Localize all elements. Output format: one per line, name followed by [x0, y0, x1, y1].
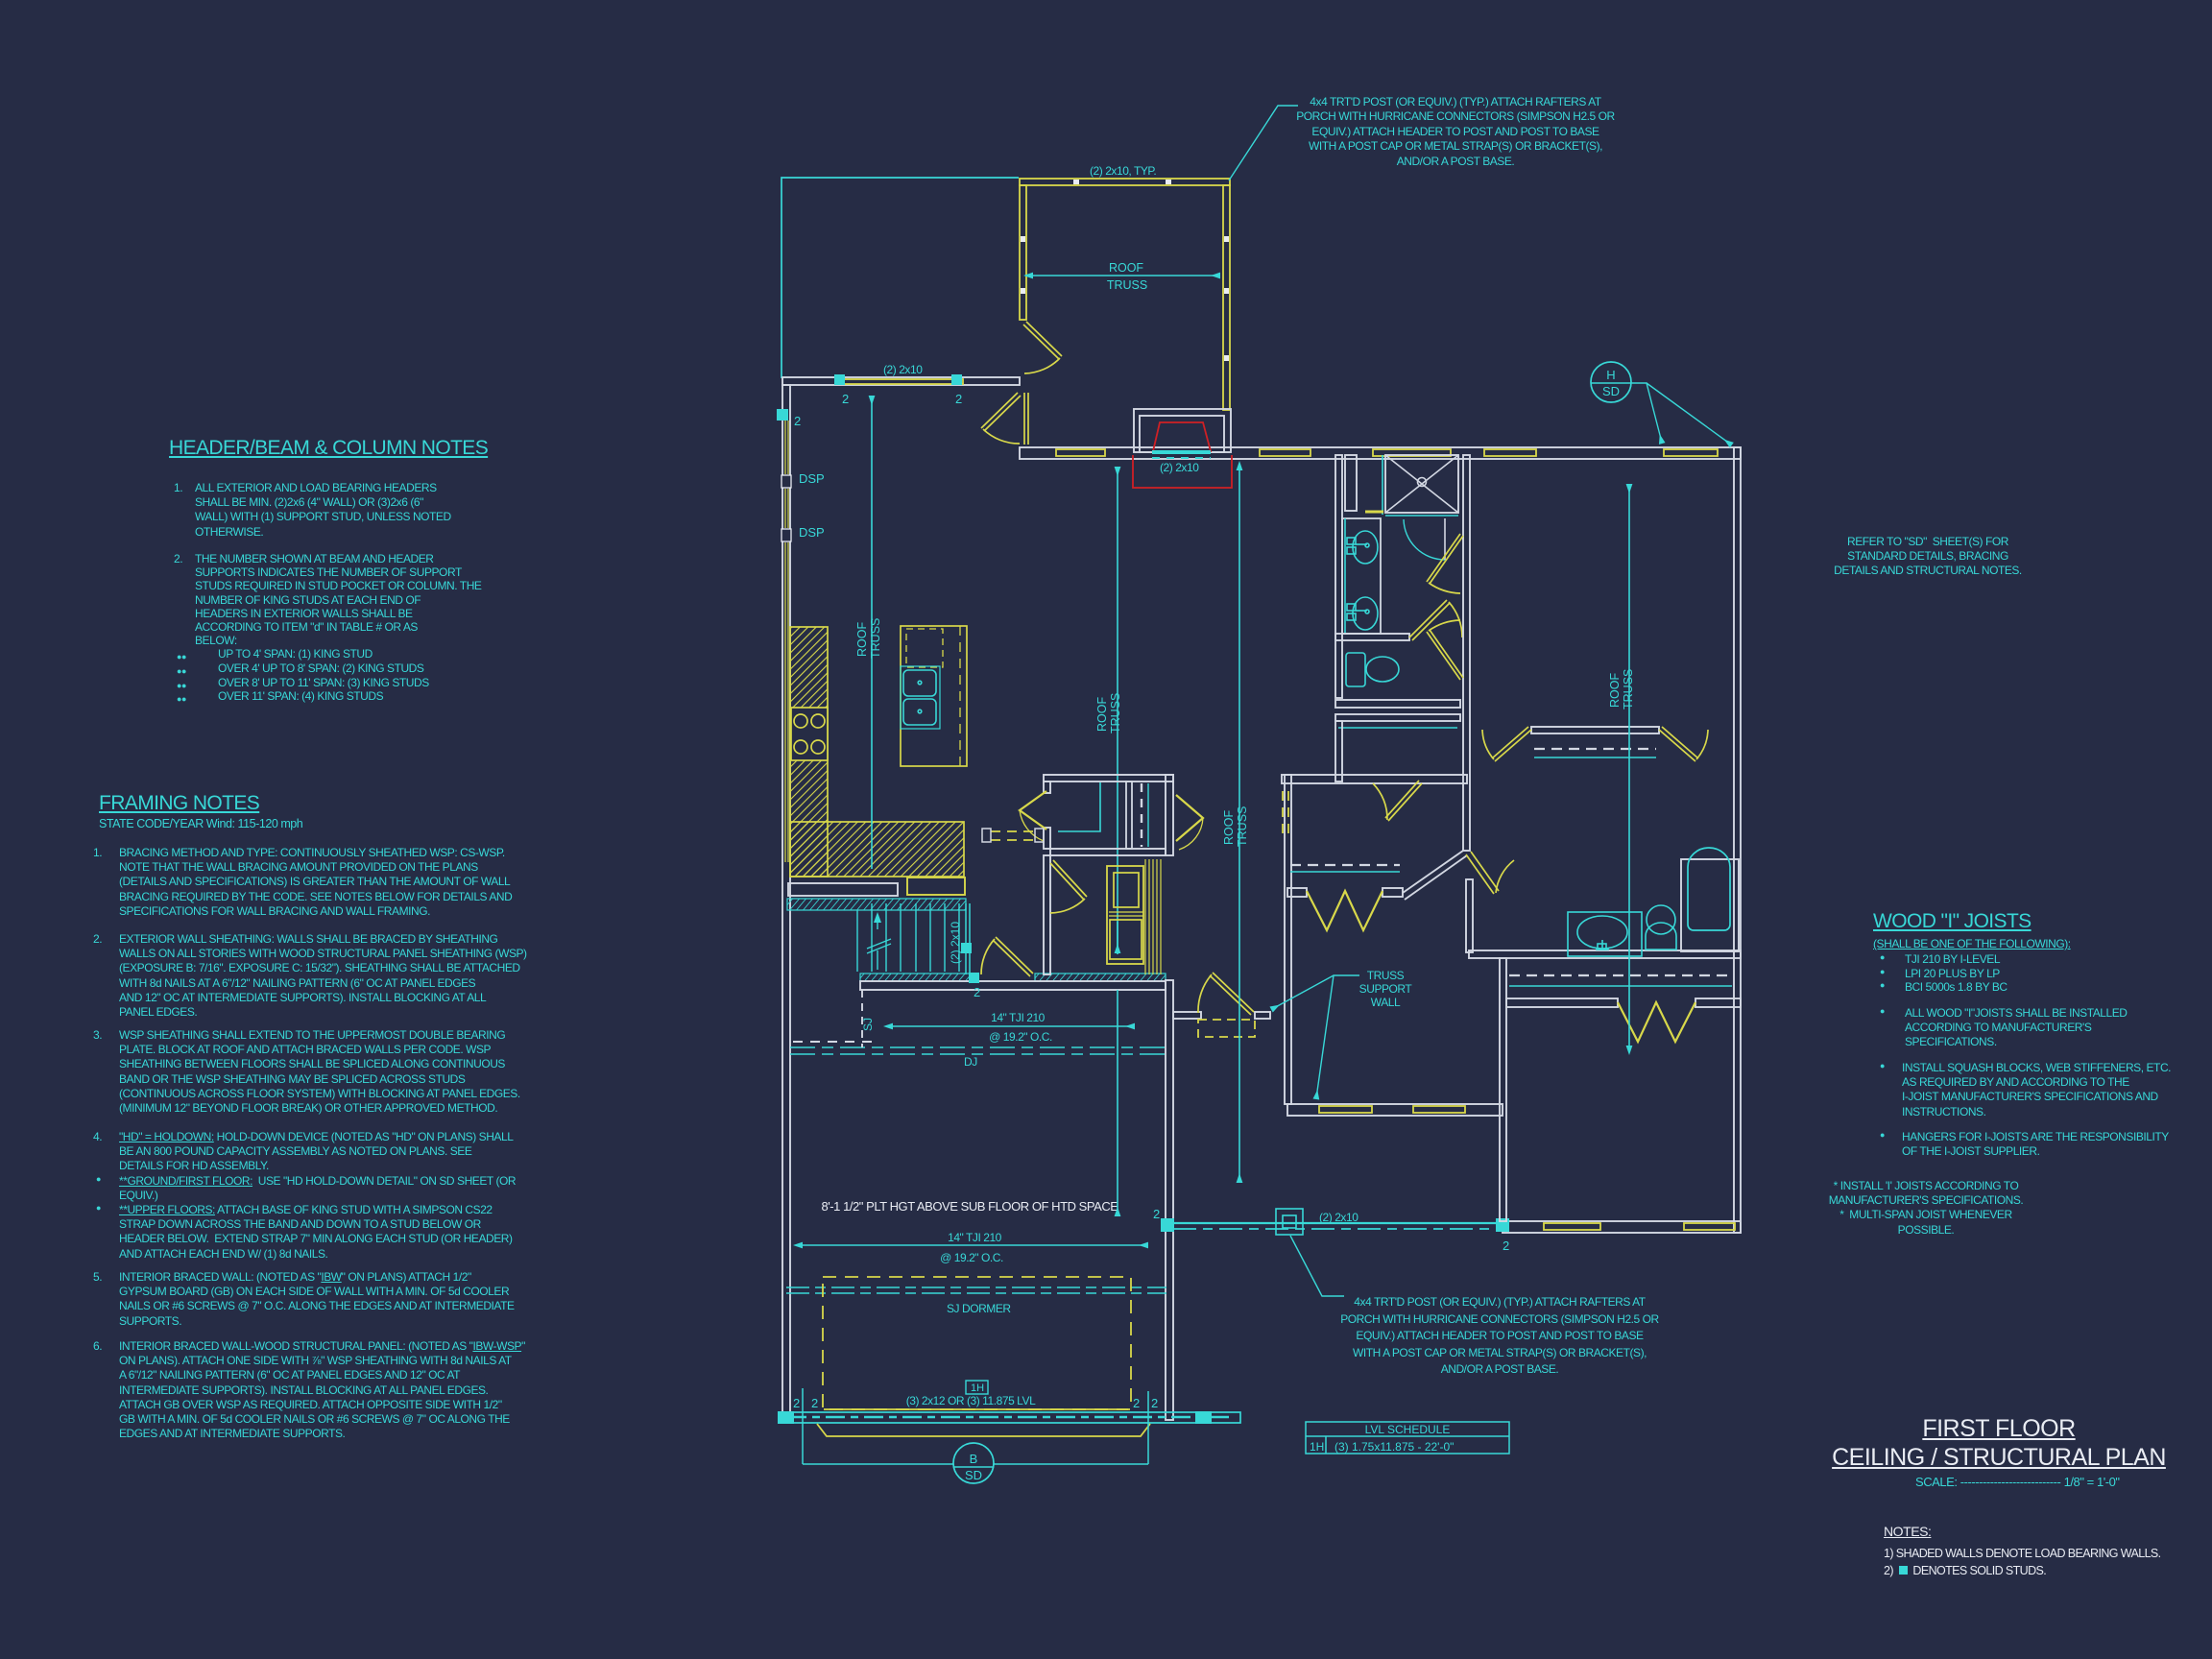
svg-text:1H: 1H — [1310, 1440, 1324, 1454]
svg-text:2: 2 — [793, 1396, 800, 1410]
svg-text:2: 2 — [974, 985, 980, 999]
svg-text:2: 2 — [842, 392, 849, 406]
svg-text:ROOF: ROOF — [855, 622, 869, 657]
svg-text:(3) 1.75x11.875 - 22'-0": (3) 1.75x11.875 - 22'-0" — [1334, 1440, 1454, 1454]
svg-text:(2) 2x10: (2) 2x10 — [949, 922, 962, 964]
svg-text:TRUSS: TRUSS — [1622, 669, 1635, 709]
svg-text:ROOF: ROOF — [1109, 261, 1143, 275]
svg-text:SD: SD — [1602, 384, 1620, 398]
svg-text:2: 2 — [794, 414, 801, 428]
svg-text:B: B — [970, 1452, 978, 1466]
svg-text:DSP: DSP — [799, 525, 825, 540]
svg-text:SD: SD — [965, 1468, 982, 1482]
svg-text:SJ: SJ — [861, 1018, 875, 1031]
svg-text:LVL SCHEDULE: LVL SCHEDULE — [1365, 1423, 1451, 1436]
svg-text:2: 2 — [1503, 1238, 1509, 1253]
svg-text:2: 2 — [1133, 1396, 1140, 1410]
svg-text:2: 2 — [1151, 1396, 1158, 1410]
svg-text:2: 2 — [1153, 1207, 1160, 1221]
svg-text:TRUSS: TRUSS — [1236, 806, 1249, 847]
svg-text:TRUSS: TRUSS — [869, 618, 882, 659]
svg-text:DSP: DSP — [799, 471, 825, 486]
svg-text:TRUSS: TRUSS — [1109, 693, 1122, 733]
svg-text:ROOF: ROOF — [1095, 697, 1109, 732]
svg-text:ROOF: ROOF — [1608, 673, 1622, 708]
svg-text:2: 2 — [811, 1396, 818, 1410]
svg-text:2: 2 — [955, 392, 962, 406]
svg-text:TRUSS: TRUSS — [1107, 278, 1147, 292]
svg-text:H: H — [1606, 368, 1615, 382]
svg-text:1H: 1H — [971, 1382, 984, 1394]
svg-text:ROOF: ROOF — [1222, 810, 1236, 845]
